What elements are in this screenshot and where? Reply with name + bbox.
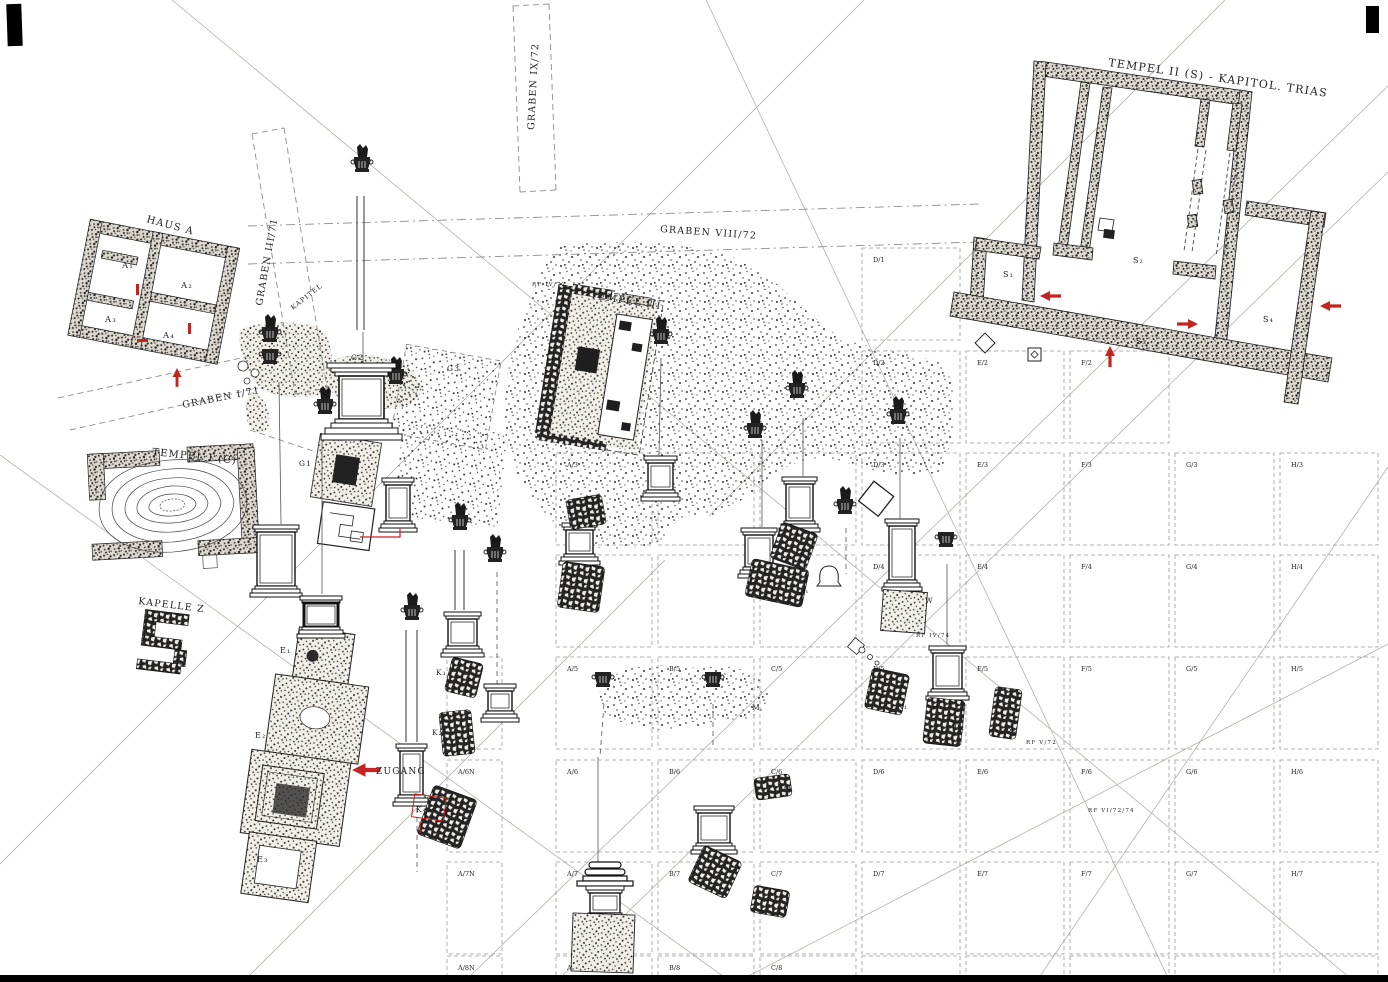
grid-cell-label: H/6 — [1291, 768, 1303, 776]
label-s3: S₃ — [1136, 337, 1147, 346]
rect — [577, 881, 633, 886]
grid-cell-label: H/5 — [1291, 665, 1303, 673]
red-tick — [136, 284, 139, 295]
rect — [331, 368, 392, 372]
map-canvas: D/1D/2E/2F/2A/3D/3E/3F/3G/3H/3D/4E/4F/4G… — [0, 0, 1388, 982]
pedestal-body — [257, 532, 295, 586]
label-rf-vi-72-74: RF VI/72/74 — [1088, 808, 1135, 814]
label-g3: G3 — [447, 364, 460, 373]
grid-cell-label: E/4 — [977, 563, 988, 571]
base — [443, 649, 482, 653]
label-graben-iii-71: GRABEN III/71 — [254, 217, 280, 307]
label-k2: K₂ — [432, 728, 443, 737]
cornice — [694, 806, 734, 810]
grid-cell-label: E/5 — [977, 665, 988, 673]
label-r2: R₂ — [954, 723, 965, 732]
column-shaft — [406, 630, 417, 742]
capital-abacus — [487, 547, 503, 550]
grid-cell-label: A/3 — [566, 461, 578, 469]
grid-cell-label: F/7 — [1081, 870, 1092, 878]
cornice — [382, 478, 414, 482]
grid-cell-label: A/6 — [566, 768, 578, 776]
statue-figure — [407, 592, 418, 605]
capital-neck — [838, 511, 852, 514]
column-capital-statue — [834, 486, 856, 514]
label-s1: S₁ — [1003, 270, 1014, 279]
rubble-foundation — [750, 885, 790, 918]
pedestal-body — [339, 376, 384, 419]
capital-neck — [891, 421, 905, 424]
capital-neck — [748, 435, 762, 438]
bottom-scan-bar — [0, 975, 1388, 982]
pedestal-body — [304, 603, 338, 627]
corner-mark-right — [1366, 6, 1379, 33]
grid-cell-label: G/7 — [1186, 870, 1198, 878]
base — [252, 589, 300, 593]
grid-cell-label: G/4 — [1186, 563, 1198, 571]
tempel2-arrow-east — [1320, 301, 1341, 311]
grid-cell-label: B/5 — [669, 665, 680, 673]
label-w: W — [925, 596, 934, 605]
cornice — [741, 528, 777, 532]
column-capital-statue — [401, 592, 423, 620]
capital-abacus — [262, 327, 278, 330]
capital-abacus — [837, 499, 853, 502]
column-shaft — [357, 196, 364, 330]
pedestal-body — [786, 484, 813, 521]
statue-figure — [357, 144, 368, 157]
rubble-foundation — [444, 657, 484, 699]
survey-line — [737, 644, 1388, 982]
label-e3: E₃ — [257, 855, 268, 864]
cornice — [484, 684, 516, 688]
grid-cell-label: E/6 — [977, 768, 988, 776]
capital-neck — [596, 684, 610, 687]
label-q: Q — [784, 783, 791, 792]
capital-neck — [453, 527, 467, 530]
grid-cell-label: H/3 — [1291, 461, 1303, 469]
column-pedestal — [441, 612, 484, 657]
label-rf-iv-74: RF IV/74 — [916, 633, 950, 639]
capital-abacus — [452, 515, 468, 518]
capital-abacus — [354, 157, 370, 160]
arrow-shape — [1177, 319, 1198, 329]
column-base-mouldings — [577, 862, 633, 886]
grid-cell-label: D/7 — [873, 870, 885, 878]
rect — [327, 363, 396, 368]
capital-abacus — [747, 423, 763, 426]
tempel2-arrow-south — [1105, 346, 1115, 367]
base — [928, 692, 967, 696]
label-rf-iv-72: RF IV/72 — [532, 282, 566, 288]
label-room-a2: A₂ — [180, 281, 193, 291]
grid-cell-label: D/2 — [873, 359, 885, 367]
grid-cell-label: G/5 — [1186, 665, 1198, 673]
label-e2: E₂ — [255, 731, 266, 740]
cornice — [929, 646, 966, 650]
grid-cell-label: H/4 — [1291, 563, 1303, 571]
capital-neck — [790, 395, 804, 398]
cornice — [782, 477, 817, 481]
rect — [585, 869, 625, 875]
grid-cell-label: A/7 — [566, 870, 578, 878]
spoil-area-haus-a-east — [239, 322, 332, 432]
graben-edge-line — [250, 430, 316, 452]
capital-neck — [405, 617, 419, 620]
structure-kapelle-z — [136, 609, 191, 674]
cornice — [396, 744, 427, 748]
capital-neck — [263, 361, 277, 364]
grid-cell-label: A/5 — [566, 665, 578, 673]
grid-cell-label: H/7 — [1291, 870, 1303, 878]
pedestal-body — [448, 619, 477, 646]
structure-e-complex — [232, 623, 376, 907]
corner-mark-left — [6, 4, 22, 46]
cornice — [885, 519, 919, 523]
grid-cell-label: A/6N — [457, 768, 475, 776]
label-k1: K₁ — [436, 668, 447, 677]
label-kapitel: KAPITEL — [289, 282, 324, 312]
statue-figure — [265, 314, 276, 327]
grid-cell-label: B/7 — [669, 870, 680, 878]
capital-neck — [263, 339, 277, 342]
grid-cell-label: D/6 — [873, 768, 885, 776]
label-room-a4: A₄ — [162, 331, 175, 341]
label-room-a3: A₃ — [104, 315, 117, 325]
column-pedestal — [481, 684, 519, 722]
grid-cell-label: C/8 — [771, 964, 782, 972]
pedestal-body — [933, 653, 962, 689]
rubble-foundation — [566, 494, 607, 530]
capital-abacus — [789, 383, 805, 386]
label-g1: G1 — [299, 459, 312, 468]
rect — [325, 428, 398, 434]
capital-abacus — [705, 672, 721, 675]
label-s2: S₂ — [1133, 256, 1144, 265]
column-capital-statue — [351, 144, 373, 172]
capital-abacus — [890, 409, 906, 412]
excavation-plan-page: D/1D/2E/2F/2A/3D/3E/3F/3G/3H/3D/4E/4F/4G… — [0, 0, 1388, 982]
arrow-shape — [1040, 291, 1061, 301]
capital-abacus — [938, 532, 954, 535]
label-rf-v-72: RF V/72 — [1026, 740, 1057, 746]
capital-abacus — [262, 349, 278, 352]
area-g3-outline — [391, 344, 501, 449]
graben-edge-line — [248, 204, 980, 226]
label-r1: R₁ — [897, 702, 908, 711]
base — [481, 718, 519, 722]
base — [395, 798, 428, 802]
graben-edge-line — [252, 128, 284, 134]
rect — [321, 434, 402, 440]
capital-neck — [488, 559, 502, 562]
arch-stone — [817, 566, 841, 586]
cornice — [444, 612, 481, 616]
base — [381, 524, 415, 528]
label-e1: E₁ — [280, 646, 291, 655]
cornice — [644, 456, 677, 460]
capital-abacus — [404, 605, 420, 608]
pedestal-body — [648, 463, 673, 490]
label-r3: R₃ — [1006, 727, 1017, 736]
grid-cell-label: E/7 — [977, 870, 988, 878]
capital-neck — [939, 544, 953, 547]
grid-cell-label: A/7N — [457, 870, 475, 878]
grid-cell-label: D/1 — [873, 256, 885, 264]
grid-cell-label: G/3 — [1186, 461, 1198, 469]
rubble-foundation — [416, 785, 477, 850]
rect — [335, 419, 388, 423]
base — [483, 714, 517, 718]
grid-cell-label: C/7 — [771, 870, 782, 878]
rect — [589, 862, 621, 868]
structure-building-g — [317, 502, 374, 551]
foundation-block — [571, 913, 635, 973]
base — [643, 493, 678, 497]
label-m: M — [752, 703, 761, 712]
label-graben-ix-72: GRABEN IX/72 — [526, 43, 542, 131]
grid-cell-label: G/6 — [1186, 768, 1198, 776]
structure-tempel-2 — [950, 61, 1332, 404]
capital-abacus — [317, 399, 333, 402]
column-pedestal — [297, 596, 345, 638]
foundation-block — [881, 590, 928, 634]
grid-cell-label: A/8N — [457, 964, 475, 972]
pedestal-body — [566, 530, 593, 554]
capital-abacus — [653, 329, 669, 332]
column-pedestal — [926, 646, 969, 700]
graben-edge-line — [513, 4, 549, 6]
spoil-area-south — [599, 665, 769, 730]
arrow-shape — [1105, 346, 1115, 367]
label-p1: P₁ — [800, 587, 809, 595]
statue-figure — [840, 486, 851, 499]
grid-cell-label: F/5 — [1081, 665, 1092, 673]
base — [441, 653, 484, 657]
column-capital-statue — [484, 534, 506, 562]
label-graben-viii-72: GRABEN VIII/72 — [660, 224, 758, 242]
capital-neck — [318, 411, 332, 414]
column-pedestal — [691, 806, 737, 854]
base — [297, 634, 345, 638]
graben-edge-line — [549, 4, 556, 190]
base — [379, 528, 417, 532]
label-s4: S₄ — [1263, 315, 1274, 324]
label-k4: K₄ — [416, 805, 427, 814]
spoil-white-island — [662, 515, 738, 581]
survey-line — [1036, 467, 1388, 982]
capital-neck — [706, 684, 720, 687]
tempel2-arrow-west — [1040, 291, 1061, 301]
column-shaft — [455, 550, 464, 610]
structure-haus-a — [68, 219, 240, 364]
column-pedestal — [882, 519, 922, 591]
grid-cell-label: D/4 — [873, 563, 885, 571]
graben-edge-line — [513, 6, 520, 192]
label-zugang: ZUGANG — [376, 767, 426, 777]
rubble-foundation — [923, 697, 966, 747]
base — [299, 630, 343, 634]
arrow-shape — [1320, 301, 1341, 311]
pedestal-body — [386, 485, 410, 521]
rubble-foundation — [557, 561, 605, 612]
tempel2-arrow-s4 — [1177, 319, 1198, 329]
grid-cell-label: C/5 — [771, 665, 782, 673]
red-tick — [137, 339, 148, 342]
pedestal-body — [889, 526, 915, 580]
grid-cell-label: B/6 — [669, 768, 680, 776]
grid-cell-label: F/4 — [1081, 563, 1092, 571]
grid-cell-label: F/3 — [1081, 461, 1092, 469]
graben-edge-line — [520, 190, 556, 192]
capital-neck — [355, 169, 369, 172]
rect — [331, 423, 392, 428]
label-g2: G2 — [351, 353, 364, 362]
column-axis-line — [600, 704, 604, 756]
base — [250, 593, 302, 597]
statue-figure — [490, 534, 501, 547]
cornice — [586, 886, 624, 890]
column-axis-line — [279, 382, 281, 524]
grid-cell-label: E/2 — [977, 359, 988, 367]
grid-cell-label: E/3 — [977, 461, 988, 469]
cornice — [253, 525, 299, 529]
label-room-a1: A₁ — [121, 261, 134, 271]
base — [561, 557, 598, 561]
rubble-foundation — [439, 709, 475, 756]
pedestal-body — [698, 813, 730, 843]
capital-neck — [654, 341, 668, 344]
base — [884, 583, 920, 587]
column-pedestal — [250, 525, 302, 597]
rect — [583, 876, 627, 881]
grid-cell-label: D/3 — [873, 461, 885, 469]
base — [641, 497, 680, 501]
grid-cell-label: F/6 — [1081, 768, 1092, 776]
capital-abacus — [595, 672, 611, 675]
grid-cell-label: B/8 — [669, 964, 680, 972]
red-tick — [188, 323, 191, 334]
grid-cell-label: F/2 — [1081, 359, 1092, 367]
capital-neck — [389, 381, 403, 384]
cornice — [300, 596, 342, 600]
